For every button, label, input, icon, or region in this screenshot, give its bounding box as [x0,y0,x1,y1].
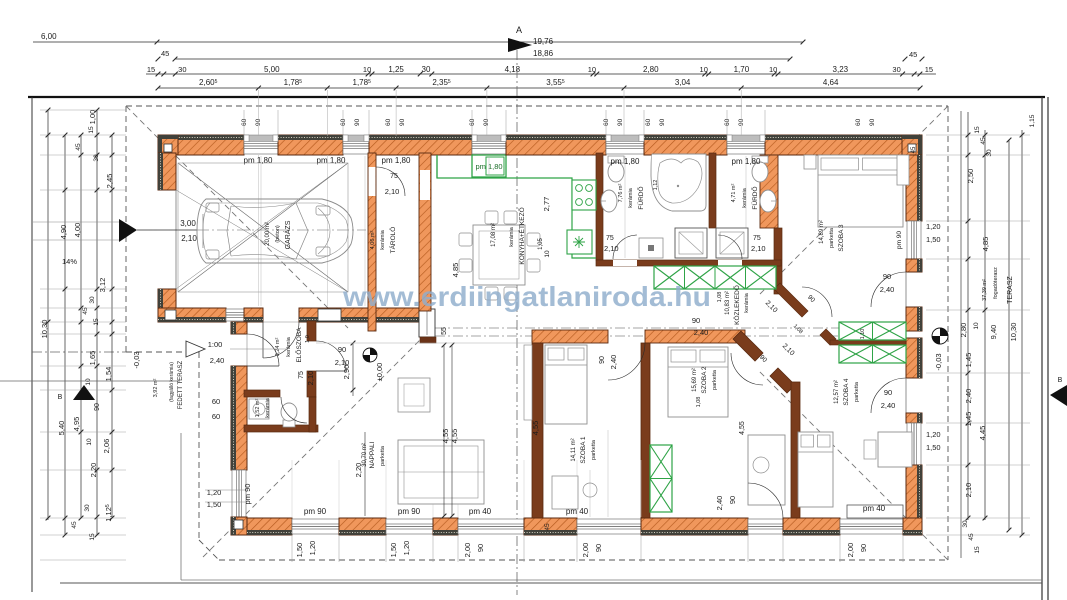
svg-text:55: 55 [441,327,448,335]
svg-text:60: 60 [340,118,347,126]
svg-text:pm 1,80: pm 1,80 [244,156,273,165]
svg-text:SZOBA 3: SZOBA 3 [838,224,845,251]
svg-text:18,86: 18,86 [533,49,554,58]
svg-text:3,92 m²: 3,92 m² [153,379,159,398]
svg-text:14,11 m²: 14,11 m² [571,438,577,461]
svg-text:1,08: 1,08 [717,292,723,303]
svg-text:GARÁZS: GARÁZS [283,220,292,249]
svg-text:TÁROLÓ: TÁROLÓ [388,227,397,254]
svg-text:15: 15 [147,65,155,74]
svg-text:parketta: parketta [712,369,718,390]
svg-text:1,20: 1,20 [926,222,941,231]
svg-text:3,24 m²: 3,24 m² [275,338,281,357]
svg-text:2,90: 2,90 [342,365,351,380]
svg-text:1,50: 1,50 [389,543,398,558]
svg-text:B: B [1058,377,1063,384]
svg-text:1,10: 1,10 [860,329,866,340]
svg-text:7,76 m²: 7,76 m² [618,184,624,203]
svg-text:2,40: 2,40 [715,496,724,511]
svg-text:KÖZLEKEDŐ: KÖZLEKEDŐ [732,285,741,325]
svg-text:1,70: 1,70 [734,65,750,74]
svg-text:45: 45 [161,49,169,58]
svg-text:pm 90: pm 90 [896,231,903,249]
svg-text:60: 60 [855,118,862,126]
svg-text:90: 90 [476,544,485,552]
svg-text:10,83 m²: 10,83 m² [725,291,731,315]
svg-text:30: 30 [986,149,993,157]
svg-text:pm 90: pm 90 [304,507,327,516]
svg-text:90: 90 [594,544,603,552]
svg-text:1,20: 1,20 [308,541,317,556]
svg-text:1,45: 1,45 [964,412,973,427]
svg-text:KONYHA+ÉTKEZŐ: KONYHA+ÉTKEZŐ [517,207,526,264]
svg-text:45: 45 [544,523,551,531]
svg-text:19,76: 19,76 [533,37,554,46]
svg-text:2,40: 2,40 [609,355,618,370]
svg-text:pm 1,80: pm 1,80 [317,156,346,165]
svg-text:1,0: 1,0 [305,335,311,343]
svg-text:1:00: 1:00 [208,340,223,349]
svg-text:FEDETT TERASZ: FEDETT TERASZ [178,360,184,409]
svg-text:pm 1,80: pm 1,80 [611,157,640,166]
svg-text:30: 30 [422,65,431,74]
svg-text:15: 15 [974,546,981,554]
svg-text:45: 45 [75,143,82,151]
svg-text:90: 90 [94,403,101,411]
svg-text:5,40: 5,40 [57,421,66,436]
svg-text:5,00: 5,00 [264,65,280,74]
svg-text:90: 90 [728,496,737,504]
svg-text:60: 60 [724,118,731,126]
svg-text:2,06: 2,06 [102,439,111,454]
svg-text:45: 45 [968,533,975,541]
svg-text:90: 90 [338,345,346,354]
svg-text:-0,03: -0,03 [934,353,943,370]
svg-text:90: 90 [399,118,406,126]
svg-text:4,64: 4,64 [823,78,839,87]
svg-text:10: 10 [86,438,93,446]
svg-text:20,00 m²: 20,00 m² [265,222,271,246]
svg-text:30: 30 [892,65,900,74]
svg-text:10: 10 [588,65,596,74]
svg-text:-0,03: -0,03 [132,351,141,368]
svg-text:fogadóterasz: fogadóterasz [993,267,999,299]
svg-text:3,23: 3,23 [833,65,849,74]
svg-text:2,10: 2,10 [385,187,400,196]
svg-text:1,20: 1,20 [207,488,222,497]
svg-text:2,00: 2,00 [463,543,472,558]
svg-text:45: 45 [82,307,89,315]
svg-text:2,45: 2,45 [105,174,114,189]
svg-text:45: 45 [980,137,987,145]
svg-text:2,80: 2,80 [643,65,659,74]
svg-text:2,10: 2,10 [306,371,315,386]
svg-text:SZOBA 1: SZOBA 1 [580,436,587,463]
svg-text:parketta: parketta [591,439,597,460]
svg-text:4,06 m²: 4,06 m² [370,231,376,250]
svg-text:17,08 m²: 17,08 m² [491,223,497,247]
svg-text:30: 30 [84,504,91,512]
svg-text:kerámia: kerámia [744,292,750,313]
svg-text:15: 15 [974,126,981,134]
svg-text:10,30: 10,30 [1009,323,1018,342]
svg-text:parketta: parketta [380,445,386,466]
svg-text:75: 75 [390,173,398,180]
svg-text:60: 60 [603,118,610,126]
svg-text:1,65: 1,65 [88,351,97,366]
svg-text:2,40: 2,40 [964,389,973,404]
svg-text:3,04: 3,04 [675,78,691,87]
svg-text:1,54: 1,54 [104,367,113,382]
svg-text:SZOBA 4: SZOBA 4 [843,378,850,405]
svg-text:15: 15 [89,533,96,541]
svg-text:3,12: 3,12 [98,278,107,293]
svg-text:45: 45 [909,50,917,59]
svg-text:37,39 m²: 37,39 m² [982,279,988,301]
svg-text:kerámia: kerámia [286,336,292,357]
svg-text:(beton): (beton) [275,225,281,243]
svg-text:15: 15 [925,65,933,74]
svg-text:2,77: 2,77 [542,197,551,212]
svg-text:FÜRDŐ: FÜRDŐ [750,186,759,209]
svg-text:9,40: 9,40 [989,325,998,340]
svg-text:90: 90 [659,118,666,126]
svg-text:www.erdiingatlaniroda.hu: www.erdiingatlaniroda.hu [342,281,711,312]
svg-text:parketta: parketta [829,227,835,248]
svg-text:2,40: 2,40 [210,356,225,365]
svg-text:90: 90 [599,356,606,364]
svg-text:14,89 m²: 14,89 m² [819,220,825,244]
svg-text:10: 10 [769,65,777,74]
svg-text:90: 90 [617,118,624,126]
svg-text:4,55: 4,55 [739,421,746,435]
svg-text:2,10: 2,10 [181,234,197,243]
svg-text:kerámia: kerámia [628,187,634,208]
svg-text:1,50: 1,50 [207,500,222,509]
svg-text:4,55: 4,55 [441,429,450,444]
svg-text:75: 75 [753,235,761,242]
svg-text:1,50: 1,50 [295,543,304,558]
svg-text:15: 15 [93,318,100,326]
svg-text:60: 60 [212,412,220,421]
svg-text:10: 10 [544,250,551,258]
svg-text:90: 90 [354,118,361,126]
svg-text:90: 90 [869,118,876,126]
svg-text:2,10: 2,10 [964,483,973,498]
svg-text:4,95: 4,95 [72,417,81,432]
svg-text:1,05: 1,05 [538,238,544,250]
svg-text:1,00: 1,00 [88,110,97,125]
svg-text:4,71 m²: 4,71 m² [731,184,737,203]
svg-text:4,90: 4,90 [59,225,68,240]
svg-text:TERASZ: TERASZ [1007,275,1014,303]
svg-text:pm 1,80: pm 1,80 [382,156,411,165]
svg-text:pm 40: pm 40 [863,504,886,513]
svg-text:kerámia: kerámia [265,397,271,418]
svg-text:90: 90 [692,316,700,325]
svg-text:pm 90: pm 90 [243,484,252,505]
svg-text:kerámia: kerámia [742,187,748,208]
svg-text:pm 1,80: pm 1,80 [732,157,761,166]
svg-text:2,50: 2,50 [966,169,975,184]
svg-text:2,20: 2,20 [89,463,98,478]
svg-text:2,20: 2,20 [354,463,363,478]
svg-text:90: 90 [859,544,868,552]
svg-text:1,52 m²: 1,52 m² [255,399,261,418]
svg-text:kerámia: kerámia [380,229,386,250]
svg-text:parketta: parketta [854,381,860,402]
svg-text:2,00: 2,00 [581,543,590,558]
svg-text:ELŐSZOBA: ELŐSZOBA [294,327,303,363]
svg-text:4,45: 4,45 [978,426,987,441]
svg-text:2,40: 2,40 [880,285,895,294]
svg-text:FÜRDŐ: FÜRDŐ [636,186,645,209]
svg-text:1,08: 1,08 [696,397,702,408]
svg-text:30: 30 [89,296,96,304]
svg-text:10: 10 [363,65,371,74]
svg-text:2,00: 2,00 [846,543,855,558]
svg-text:kerámia: kerámia [509,226,515,247]
svg-text:1,45: 1,45 [964,353,973,368]
svg-text:14%: 14% [62,257,77,266]
svg-text:A: A [516,25,522,35]
svg-text:1,20: 1,20 [402,541,411,556]
svg-text:4,55: 4,55 [450,429,459,444]
svg-text:2,40: 2,40 [881,401,896,410]
svg-text:90: 90 [738,118,745,126]
svg-text:90: 90 [884,388,892,397]
svg-text:60: 60 [385,118,392,126]
svg-text:pm 40: pm 40 [469,507,492,516]
svg-text:4,85: 4,85 [451,263,460,278]
svg-text:1,50: 1,50 [926,235,941,244]
svg-text:15,69 m²: 15,69 m² [692,368,698,392]
svg-text:2,10: 2,10 [751,244,766,253]
svg-text:1,50: 1,50 [926,443,941,452]
svg-text:B: B [58,394,63,401]
svg-text:10: 10 [700,65,708,74]
svg-text:3,00: 3,00 [180,219,196,228]
svg-text:75: 75 [606,235,614,242]
svg-text:30: 30 [178,65,186,74]
svg-text:1,25: 1,25 [388,65,404,74]
svg-text:±0,00: ±0,00 [375,363,384,382]
svg-text:4,55: 4,55 [531,421,540,436]
svg-text:30: 30 [93,154,100,162]
svg-text:45: 45 [71,521,78,529]
svg-text:pm 90: pm 90 [398,507,421,516]
svg-text:75: 75 [298,371,305,379]
svg-text:90: 90 [483,118,490,126]
svg-text:1,15: 1,15 [1029,114,1036,127]
svg-text:1,20: 1,20 [926,430,941,439]
svg-text:4,18: 4,18 [505,65,521,74]
svg-text:30: 30 [962,520,969,528]
svg-text:1,12: 1,12 [653,180,659,191]
svg-text:6,00: 6,00 [41,32,57,41]
svg-text:60: 60 [469,118,476,126]
svg-text:12,57 m²: 12,57 m² [834,380,840,404]
svg-text:NAPPALI: NAPPALI [369,441,376,468]
svg-text:(fagyálló kerámia): (fagyálló kerámia) [169,362,175,402]
svg-text:60: 60 [645,118,652,126]
svg-text:10: 10 [973,322,980,330]
svg-text:4,85: 4,85 [981,237,990,252]
svg-text:2,80: 2,80 [959,323,968,338]
svg-text:10,30: 10,30 [40,320,49,339]
svg-text:10: 10 [85,378,92,386]
svg-text:4,00: 4,00 [73,223,82,238]
svg-text:2,10: 2,10 [604,244,619,253]
svg-text:60: 60 [212,397,220,406]
svg-text:15: 15 [88,126,95,134]
svg-text:60: 60 [241,118,248,126]
svg-text:45: 45 [911,146,917,153]
svg-text:SZOBA 2: SZOBA 2 [701,366,708,393]
svg-text:2,40: 2,40 [694,328,709,337]
